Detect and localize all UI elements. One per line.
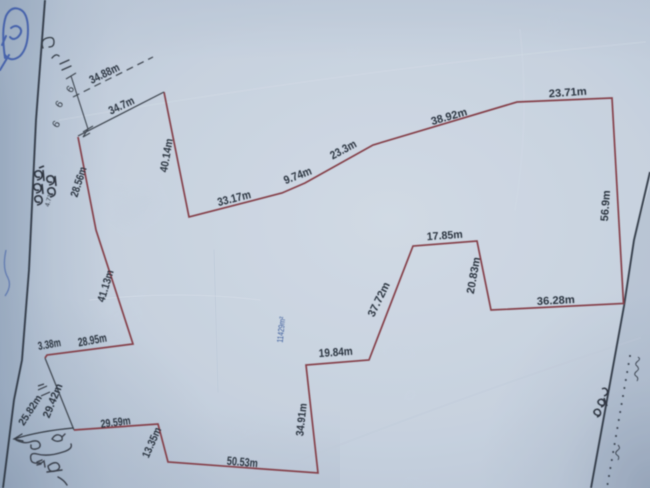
- svg-text:50.53m: 50.53m: [226, 454, 258, 471]
- svg-text:36.28m: 36.28m: [537, 294, 576, 308]
- svg-text:19.84m: 19.84m: [318, 346, 353, 360]
- svg-text:17.85m: 17.85m: [426, 229, 463, 243]
- svg-text:56.9m: 56.9m: [599, 190, 613, 222]
